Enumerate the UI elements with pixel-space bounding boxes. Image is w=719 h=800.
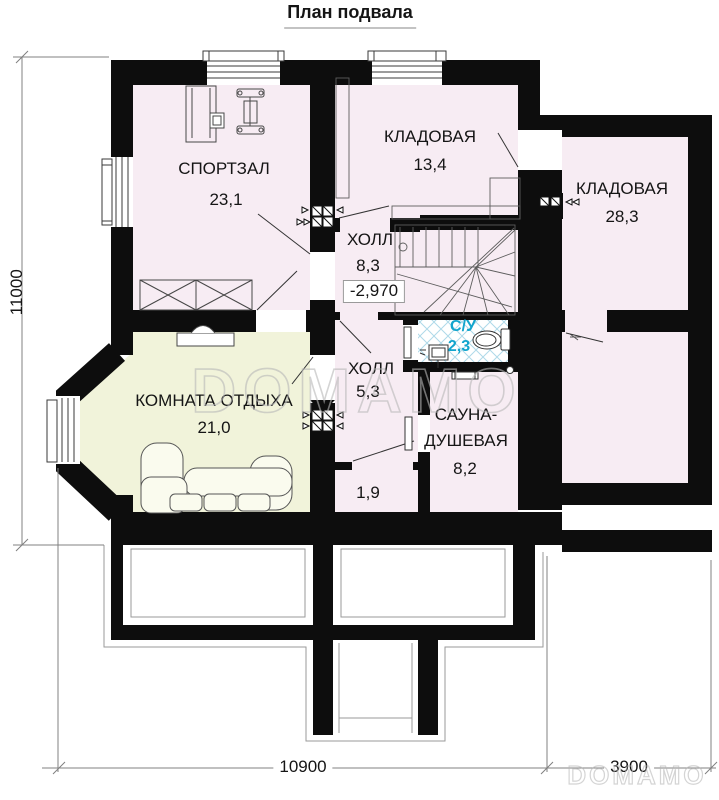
dimension-height: 11000 [7, 252, 27, 332]
room-label-sauna-line2: ДУШЕВАЯ [424, 431, 508, 451]
room-label-storage-top: КЛАДОВАЯ [384, 127, 476, 147]
room-area-closet: 1,9 [356, 483, 380, 503]
room-area-storage-right: 28,3 [605, 207, 638, 227]
room-label-storage-right: КЛАДОВАЯ [576, 179, 668, 199]
floor-plan: План подвала СПОРТЗАЛ 23,1 КЛАДОВАЯ 13,4… [0, 0, 719, 800]
room-label-sauna-line1: САУНА- [435, 405, 498, 425]
page-title: План подвала [284, 2, 416, 29]
window-top-mid-icon [368, 51, 446, 85]
elevation-mark: -2,970 [343, 280, 405, 303]
room-area-storage-top: 13,4 [413, 155, 446, 175]
room-area-wc: 2,3 [448, 337, 470, 356]
room-label-gym: СПОРТЗАЛ [178, 159, 270, 179]
window-top-left-icon [203, 51, 284, 85]
dimension-width-wing: 3900 [604, 757, 654, 777]
room-area-hall-lower: 5,3 [356, 382, 380, 402]
room-area-gym: 23,1 [209, 190, 242, 210]
window-bay-icon [47, 396, 80, 464]
room-label-hall-lower: ХОЛЛ [348, 359, 394, 379]
door-sauna-leaf [405, 417, 412, 450]
room-label-hall-upper: ХОЛЛ [347, 230, 393, 250]
dimension-width-main: 10900 [273, 757, 332, 777]
window-left-icon [102, 157, 133, 227]
room-area-sauna: 8,2 [453, 459, 477, 479]
room-area-lounge: 21,0 [197, 418, 230, 438]
room-label-lounge: КОМНАТА ОТДЫХА [135, 391, 293, 411]
room-area-hall-upper: 8,3 [356, 256, 380, 276]
door-wc-leaf [404, 327, 411, 358]
room-label-wc: С/У [450, 317, 476, 336]
